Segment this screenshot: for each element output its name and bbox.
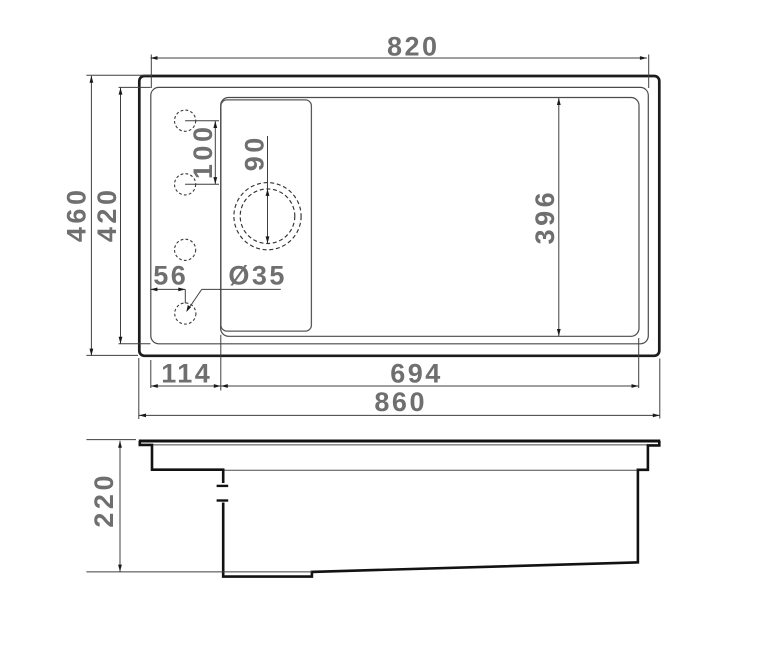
svg-text:100: 100 xyxy=(188,124,218,180)
svg-text:Ø35: Ø35 xyxy=(228,261,287,291)
svg-text:460: 460 xyxy=(62,187,92,243)
svg-text:114: 114 xyxy=(161,358,212,388)
svg-text:56: 56 xyxy=(153,261,188,291)
svg-text:820: 820 xyxy=(387,32,440,62)
svg-text:396: 396 xyxy=(530,189,560,245)
svg-text:694: 694 xyxy=(390,358,443,388)
svg-text:420: 420 xyxy=(92,187,122,243)
svg-text:860: 860 xyxy=(374,387,427,417)
svg-text:220: 220 xyxy=(89,472,119,528)
svg-text:90: 90 xyxy=(239,134,269,171)
